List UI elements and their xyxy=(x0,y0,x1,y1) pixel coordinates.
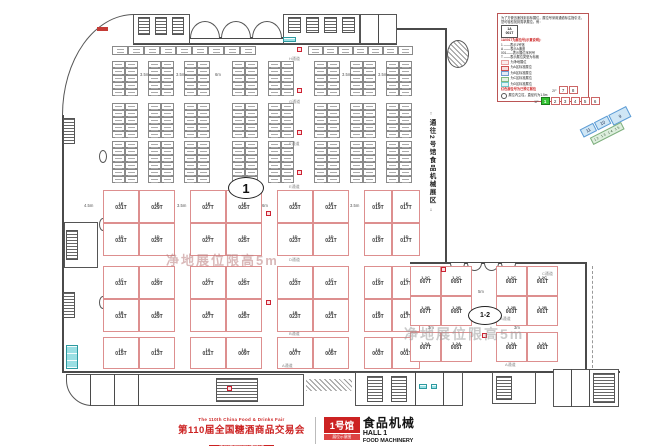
booth-standard: 1A003T xyxy=(364,337,392,369)
booth-standard: 1C019T xyxy=(364,266,392,299)
booth-standard: 1B021T xyxy=(313,299,349,332)
booth-number: 005T xyxy=(451,280,462,286)
booth-cell-small xyxy=(125,75,138,82)
booth-number: 019T xyxy=(372,282,383,288)
booth-cell-small xyxy=(232,68,245,75)
booth-cell-small xyxy=(363,82,376,89)
booth-number: 015T xyxy=(115,352,126,358)
booth-cell-small xyxy=(399,117,412,124)
booth-cell-small xyxy=(245,148,258,155)
booth-standard: 1B023T xyxy=(277,299,313,332)
booth-cell-small xyxy=(125,89,138,96)
booth-cell-small xyxy=(268,141,281,148)
booth-cell-small xyxy=(327,110,340,117)
booth-cell-small xyxy=(399,82,412,89)
booth-cell-small xyxy=(197,148,210,155)
booth-cell-small xyxy=(350,82,363,89)
legend-chip-row: 为C区标准展位 xyxy=(501,77,585,82)
booth-cell-small xyxy=(144,46,160,55)
booth-cell-small xyxy=(232,61,245,68)
watermark-height-limit: 净地展位限高5m xyxy=(166,250,279,269)
booth-cell-small xyxy=(245,61,258,68)
booth-cell-small xyxy=(112,176,125,183)
booth-cell-small xyxy=(350,124,363,131)
stair-hatch xyxy=(172,17,184,35)
booth-cell-small xyxy=(148,176,161,183)
stair-hatch xyxy=(216,378,258,402)
color-swatch xyxy=(501,77,509,82)
booth-number: 023T xyxy=(289,315,300,321)
booth-cell-small xyxy=(125,110,138,117)
booth-cell-small xyxy=(184,155,197,162)
booth-cell-small xyxy=(314,117,327,124)
wall xyxy=(397,28,447,30)
booth-cell-small xyxy=(281,169,294,176)
booth-number: 021T xyxy=(325,282,336,288)
booth-cell-small xyxy=(184,131,197,138)
booth-cell-small xyxy=(386,169,399,176)
booth-cell-small xyxy=(112,103,125,110)
entrance-arch xyxy=(221,21,251,38)
booth-cell-small xyxy=(184,148,197,155)
wall xyxy=(445,28,447,264)
booth-cell-small xyxy=(363,176,376,183)
booth-cell-small xyxy=(363,162,376,169)
booth-number: 021T xyxy=(325,239,336,245)
booth-cell-small xyxy=(197,124,210,131)
booth-cell-small xyxy=(350,148,363,155)
aisle-width-label: 6m xyxy=(262,203,268,208)
stair-hatch xyxy=(496,376,512,400)
booth-cell-small xyxy=(399,169,412,176)
nav-hall-box: 2 xyxy=(551,97,560,105)
dashed-boundary xyxy=(592,266,593,368)
booth-cell-small xyxy=(363,61,376,68)
booth-cell-small xyxy=(125,124,138,131)
booth-cell-small xyxy=(192,46,208,55)
booth-number: 019T xyxy=(372,315,383,321)
booth-number: 029T xyxy=(151,206,162,212)
booth-cell-small xyxy=(184,110,197,117)
booth-cell-small xyxy=(197,110,210,117)
booth-standard: 1B027T xyxy=(190,299,226,332)
booth-cell-small xyxy=(232,169,245,176)
booth-cell-small xyxy=(161,103,174,110)
booth-number: 031T xyxy=(115,315,126,321)
booth-cell-small xyxy=(232,162,245,169)
booth-cell-small xyxy=(399,89,412,96)
booth-cell-small xyxy=(327,103,340,110)
fire-hydrant-marker xyxy=(266,211,271,216)
fire-hydrant-marker xyxy=(266,300,271,305)
booth-cell-small xyxy=(148,103,161,110)
booth-cell-small xyxy=(268,103,281,110)
booth-cell-small xyxy=(245,68,258,75)
booth-number: 019T xyxy=(372,206,383,212)
booth-standard: 1A013T xyxy=(139,337,175,369)
booth-cell-small xyxy=(112,162,125,169)
booth-cell-small xyxy=(148,131,161,138)
booth-cell-small xyxy=(363,89,376,96)
booth-cell-small xyxy=(125,155,138,162)
booth-cell-small xyxy=(268,155,281,162)
hall-title-cn: 食品机械 xyxy=(363,417,415,430)
booth-number: 021T xyxy=(325,315,336,321)
pillar-icon xyxy=(501,93,507,99)
booth-cell-small xyxy=(327,61,340,68)
booth-cell-small xyxy=(197,82,210,89)
booth-number: 009T xyxy=(238,352,249,358)
booth-cell-small xyxy=(350,103,363,110)
wall xyxy=(62,371,620,373)
booth-cell-small xyxy=(148,141,161,148)
utility-tiles xyxy=(431,384,437,389)
stair-hatch xyxy=(391,376,407,402)
booth-cell-small xyxy=(350,75,363,82)
booth-cell-small xyxy=(232,141,245,148)
aisle-width-label: 3.5m xyxy=(176,72,185,77)
booth-cell-small xyxy=(386,82,399,89)
booth-number: 027T xyxy=(202,315,213,321)
wall-module xyxy=(63,292,75,318)
floor1-label: 1F xyxy=(534,99,539,104)
booth-cell-small xyxy=(314,131,327,138)
color-swatch xyxy=(501,60,509,65)
booth-cell-small xyxy=(161,131,174,138)
booth-number: 001T xyxy=(537,310,548,316)
booth-cell-small xyxy=(363,75,376,82)
booth-cell-small xyxy=(350,68,363,75)
floor1-halls: 123456 xyxy=(541,97,600,105)
fire-hydrant-marker xyxy=(297,88,302,93)
booth-cell-small xyxy=(399,75,412,82)
wall-red-mark xyxy=(97,27,108,31)
booth-standard: 1C025T xyxy=(226,266,262,299)
booth-cell-small xyxy=(281,61,294,68)
arrow-down-icon: ↓ xyxy=(430,207,433,213)
booth-cell-small xyxy=(197,75,210,82)
hall-badge-group: 1号馆 展位示意图 xyxy=(324,417,360,444)
booth-cell-small xyxy=(386,61,399,68)
room-divider xyxy=(443,372,444,406)
aisle-width-label: 4.5m xyxy=(84,203,93,208)
booth-standard: 1B029T xyxy=(139,299,175,332)
stair-hatch xyxy=(324,17,337,33)
booth-cell-small xyxy=(125,61,138,68)
hall-titles: 食品机械 HALL 1 FOOD MACHINERY xyxy=(363,417,415,444)
aisle-name-label: A通道 xyxy=(505,362,516,368)
hall-nav-minimap: 2F 78 1F 123456 11109 12 13 14 15 xyxy=(534,86,666,148)
aisle-width-label: 6m xyxy=(215,72,221,77)
booth-cell-small xyxy=(245,82,258,89)
booth-cell-small xyxy=(281,110,294,117)
booth-number: 023T xyxy=(289,206,300,212)
booth-cell-small xyxy=(176,46,192,55)
booth-cell-small xyxy=(399,110,412,117)
booth-cell-small xyxy=(148,82,161,89)
booth-cell-small xyxy=(399,68,412,75)
booth-cell-small xyxy=(327,68,340,75)
booth-cell-small xyxy=(161,124,174,131)
booth-cell-small xyxy=(368,46,383,55)
legend-chip-row: 为A区标准展位 xyxy=(501,66,585,71)
booth-cell-small xyxy=(245,89,258,96)
fair-name-cn: 第110届全国糖酒商品交易会 xyxy=(178,422,305,436)
booth-cell-small xyxy=(125,141,138,148)
color-swatch xyxy=(501,71,509,76)
booth-cell-small xyxy=(161,162,174,169)
booth-number: 005T xyxy=(451,310,462,316)
booth-cell-small xyxy=(281,124,294,131)
booth-number: 031T xyxy=(115,239,126,245)
booth-standard: 1C023T xyxy=(277,266,313,299)
booth-number: 007T xyxy=(420,346,431,352)
booth-cell-small xyxy=(281,89,294,96)
booth-cell-small xyxy=(268,124,281,131)
booth-cell-small xyxy=(232,124,245,131)
stair-hatch xyxy=(66,230,78,260)
chip-label: 为C区标准展位 xyxy=(511,77,532,81)
booth-cell-small xyxy=(350,89,363,96)
booth-standard: 1-2B001T xyxy=(527,296,558,326)
legend-intro: 为了方便迅速找到目标展位，展位号采用通道标注指引法，您可轻松找到需求展位。例： xyxy=(501,16,585,24)
booth-cell-small xyxy=(245,169,258,176)
stair-hatch xyxy=(306,17,319,33)
booth-standard: 1E029T xyxy=(139,190,175,223)
booth-number: 005T xyxy=(325,352,336,358)
booth-cell-small xyxy=(112,82,125,89)
booth-number: 023T xyxy=(289,282,300,288)
booth-cell-small xyxy=(112,141,125,148)
booth-standard: 1E031T xyxy=(103,190,139,223)
nav-hall-box: 4 xyxy=(571,97,580,105)
booth-cell-small xyxy=(399,148,412,155)
stair-hatch xyxy=(342,17,355,33)
booth-cell-small xyxy=(363,169,376,176)
hall-floor-plan: ↑ 通往2号馆食品机械展区 ↓ 为了方便迅速找到目标展位，展位号采用通道标注指引… xyxy=(0,0,666,446)
booth-cell-small xyxy=(268,117,281,124)
booth-cell-small xyxy=(245,110,258,117)
booth-cell-small xyxy=(314,61,327,68)
nav-hall-box: 6 xyxy=(591,97,600,105)
booth-number: 021T xyxy=(325,206,336,212)
aisle-name-label: C通道 xyxy=(542,271,553,277)
booth-cell-small xyxy=(327,131,340,138)
booth-cell-small xyxy=(184,162,197,169)
booth-cell-small xyxy=(197,89,210,96)
booth-cell-small xyxy=(184,169,197,176)
nav-hall-box: 8 xyxy=(569,86,578,94)
booth-cell-small xyxy=(399,176,412,183)
booth-cell-small xyxy=(197,117,210,124)
booth-cell-small xyxy=(327,89,340,96)
booth-cell-small xyxy=(232,75,245,82)
entrance-arch xyxy=(190,21,220,38)
booth-cell-small xyxy=(148,89,161,96)
legend-sample-booth: 1A 001T xyxy=(501,25,518,38)
spiral-stair xyxy=(447,40,469,68)
booth-cell-small xyxy=(112,75,125,82)
fire-hydrant-marker xyxy=(297,47,302,52)
room-divider xyxy=(138,374,139,406)
booth-cell-small xyxy=(327,82,340,89)
wall-module xyxy=(63,118,75,144)
booth-cell-small xyxy=(197,155,210,162)
booth-cell-small xyxy=(197,68,210,75)
nav-hall-box: 3 xyxy=(561,97,570,105)
booth-cell-small xyxy=(197,162,210,169)
booth-cell-small xyxy=(161,75,174,82)
booth-cell-small xyxy=(350,110,363,117)
booth-standard: 1E021T xyxy=(313,190,349,223)
booth-cell-small xyxy=(268,89,281,96)
booth-cell-small xyxy=(314,148,327,155)
room-divider xyxy=(114,374,115,406)
aisle-name-label: A通道 xyxy=(282,363,293,369)
fire-hydrant-marker xyxy=(297,170,302,175)
booth-cell-small xyxy=(281,176,294,183)
booth-cell-small xyxy=(148,61,161,68)
booth-cell-small xyxy=(268,131,281,138)
aisle-name-label: G通道 xyxy=(289,99,300,105)
booth-cell-small xyxy=(386,141,399,148)
booth-number: 019T xyxy=(372,239,383,245)
booth-cell-small xyxy=(245,124,258,131)
nav-floor2-row: 2F 78 xyxy=(552,86,578,94)
booth-number: 027T xyxy=(202,282,213,288)
booth-cell-small xyxy=(268,68,281,75)
booth-cell-small xyxy=(245,141,258,148)
booth-cell-small xyxy=(399,61,412,68)
booth-number: 007T xyxy=(420,310,431,316)
booth-cell-small xyxy=(232,103,245,110)
booth-cell-small xyxy=(148,124,161,131)
booth-cell-small xyxy=(232,110,245,117)
booth-cell-small xyxy=(314,124,327,131)
booth-cell-small xyxy=(399,103,412,110)
booth-cell-small xyxy=(232,131,245,138)
stair-hatch xyxy=(367,376,383,402)
floor2-halls: 78 xyxy=(559,86,578,94)
booth-cell-small xyxy=(197,103,210,110)
booth-number: 003T xyxy=(506,346,517,352)
booth-cell-small xyxy=(386,176,399,183)
hall-badge: 1号馆 xyxy=(324,417,360,433)
expansion-joint xyxy=(306,379,352,391)
nav-hall-box: 7 xyxy=(559,86,568,94)
booth-cell-small xyxy=(327,169,340,176)
booth-cell-small xyxy=(161,155,174,162)
booth-cell-small xyxy=(112,148,125,155)
booth-cell-small xyxy=(161,169,174,176)
booth-cell-small xyxy=(268,176,281,183)
booth-standard: 1D023T xyxy=(277,223,313,256)
booth-number: 029T xyxy=(151,315,162,321)
booth-cell-small xyxy=(224,46,240,55)
booth-cell-small xyxy=(112,169,125,176)
booth-cell-small xyxy=(386,103,399,110)
booth-number: 027T xyxy=(202,206,213,212)
booth-cell-small xyxy=(148,68,161,75)
booth-cell-small xyxy=(148,155,161,162)
booth-cell-small xyxy=(350,169,363,176)
hall-title-en2: FOOD MACHINERY xyxy=(363,438,415,444)
floor2-label: 2F xyxy=(552,88,557,93)
booth-cell-small xyxy=(125,148,138,155)
booth-cell-small xyxy=(399,155,412,162)
booth-cell-small xyxy=(125,117,138,124)
booth-number: 023T xyxy=(289,239,300,245)
booth-cell-small xyxy=(350,131,363,138)
booth-cell-small xyxy=(112,131,125,138)
booth-cell-small xyxy=(281,82,294,89)
booth-cell-small xyxy=(338,46,353,55)
booth-cell-small xyxy=(197,169,210,176)
booth-cell-small xyxy=(327,124,340,131)
booth-cell-small xyxy=(350,117,363,124)
booth-number: 001T xyxy=(537,346,548,352)
legend-line: T ——表示展位类型为标摊 xyxy=(501,55,585,59)
booth-cell-small xyxy=(148,75,161,82)
booth-cell-small xyxy=(314,176,327,183)
nav-hall-box: 1 xyxy=(541,97,550,105)
booth-cell-small xyxy=(245,75,258,82)
room-divider xyxy=(378,14,379,44)
room-divider xyxy=(589,369,590,407)
booth-cell-small xyxy=(268,61,281,68)
booth-cell-small xyxy=(112,68,125,75)
booth-cell-small xyxy=(161,117,174,124)
aisle-width-label: 5m xyxy=(478,289,484,294)
booth-cell-small xyxy=(399,141,412,148)
booth-cell-small xyxy=(161,82,174,89)
booth-cell-small xyxy=(327,176,340,183)
booth-cell-small xyxy=(314,110,327,117)
stair-hatch xyxy=(155,17,167,35)
booth-cell-small xyxy=(184,141,197,148)
booth-cell-small xyxy=(148,162,161,169)
booth-cell-small xyxy=(386,124,399,131)
booth-cell-small xyxy=(386,117,399,124)
booth-standard: 1D031T xyxy=(103,223,139,256)
corridor-note-text: 通往2号馆食品机械展区 xyxy=(426,119,436,204)
booth-number: 017T xyxy=(400,239,411,245)
booth-standard: 1E017T xyxy=(392,190,420,223)
booth-cell-small xyxy=(314,75,327,82)
booth-cell-small xyxy=(125,176,138,183)
booth-cell-small xyxy=(386,110,399,117)
booth-cell-small xyxy=(161,61,174,68)
booth-cell-small xyxy=(268,82,281,89)
booth-number: 013T xyxy=(151,352,162,358)
hall-title-block: 1号馆 展位示意图 食品机械 HALL 1 FOOD MACHINERY xyxy=(315,417,415,444)
booth-cell-small xyxy=(363,124,376,131)
legend-color-key: 为净地展位 为A区标准展位 为B区标准展位 为C区标准展位 为D区标准展位 xyxy=(501,60,585,87)
booth-cell-small xyxy=(314,68,327,75)
booth-standard: 1-2C007T xyxy=(410,266,441,296)
booth-standard: 1B025T xyxy=(226,299,262,332)
booth-cell-small xyxy=(125,169,138,176)
booth-cell-small xyxy=(363,155,376,162)
booth-cell-small xyxy=(281,117,294,124)
booth-cell-small xyxy=(148,110,161,117)
booth-cell-small xyxy=(314,162,327,169)
booth-cell-small xyxy=(161,110,174,117)
booth-cell-small xyxy=(281,75,294,82)
hall-number-marker: 1-2 xyxy=(468,306,502,325)
booth-cell-small xyxy=(281,148,294,155)
booth-cell-small xyxy=(327,75,340,82)
